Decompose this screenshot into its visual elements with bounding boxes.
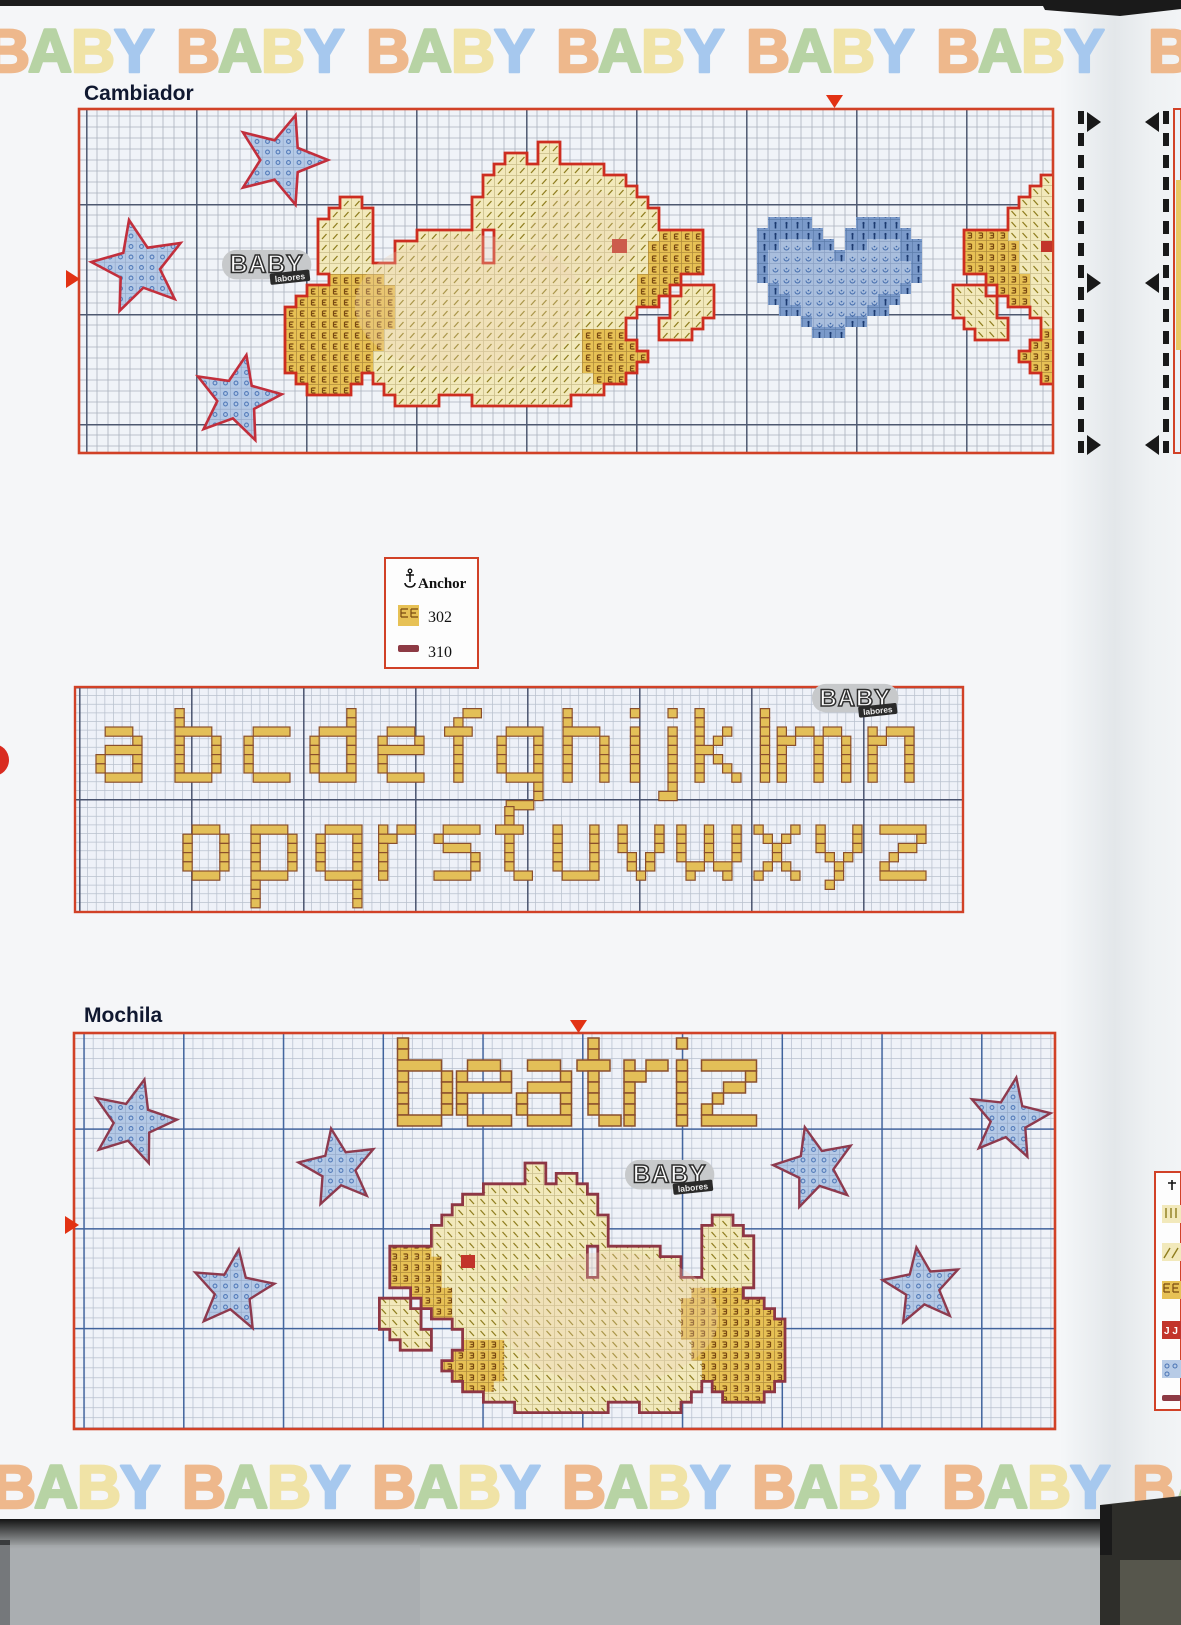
svg-text:B: B <box>372 1453 416 1521</box>
svg-text:B: B <box>1021 17 1065 85</box>
svg-text:Y: Y <box>690 1453 731 1521</box>
svg-text:J J: J J <box>1164 1326 1178 1337</box>
svg-text:Cambiador: Cambiador <box>84 82 194 105</box>
svg-text:B: B <box>267 1453 311 1521</box>
svg-text:Y: Y <box>304 17 345 85</box>
svg-text:B: B <box>1148 17 1181 85</box>
svg-text:302: 302 <box>428 609 452 626</box>
svg-text:B: B <box>641 17 685 85</box>
svg-text:B: B <box>936 17 980 85</box>
svg-text:A: A <box>598 17 642 85</box>
svg-text:Y: Y <box>874 17 915 85</box>
svg-text:A: A <box>788 17 832 85</box>
svg-text:Y: Y <box>1064 17 1105 85</box>
svg-text:Y: Y <box>494 17 535 85</box>
svg-text:310: 310 <box>428 644 452 661</box>
svg-text:A: A <box>984 1453 1028 1521</box>
svg-text:Y: Y <box>120 1453 161 1521</box>
svg-text:B: B <box>837 1453 881 1521</box>
svg-text:B: B <box>457 1453 501 1521</box>
svg-text:Mochila: Mochila <box>84 1004 162 1027</box>
svg-text:A: A <box>218 17 262 85</box>
svg-text:Y: Y <box>880 1453 921 1521</box>
svg-text:B: B <box>942 1453 986 1521</box>
svg-text:B: B <box>261 17 305 85</box>
svg-text:B: B <box>182 1453 226 1521</box>
svg-text:A: A <box>978 17 1022 85</box>
svg-text:B: B <box>366 17 410 85</box>
svg-text:Y: Y <box>500 1453 541 1521</box>
svg-text:B: B <box>0 1453 36 1521</box>
svg-text:B: B <box>647 1453 691 1521</box>
svg-text:A: A <box>604 1453 648 1521</box>
svg-text:A: A <box>414 1453 458 1521</box>
svg-text:B: B <box>556 17 600 85</box>
svg-text:B: B <box>752 1453 796 1521</box>
svg-text:Anchor: Anchor <box>418 576 467 592</box>
svg-text:B: B <box>831 17 875 85</box>
svg-text:B: B <box>176 17 220 85</box>
svg-text:A: A <box>224 1453 268 1521</box>
svg-text:B: B <box>0 17 30 85</box>
svg-text:B: B <box>71 17 115 85</box>
svg-text:B: B <box>1027 1453 1071 1521</box>
svg-text:B: B <box>451 17 495 85</box>
svg-text:B: B <box>746 17 790 85</box>
svg-text:A: A <box>34 1453 78 1521</box>
svg-text:A: A <box>408 17 452 85</box>
svg-text:Y: Y <box>310 1453 351 1521</box>
svg-text:Y: Y <box>114 17 155 85</box>
svg-text:A: A <box>794 1453 838 1521</box>
svg-text:A: A <box>28 17 72 85</box>
svg-text:B: B <box>77 1453 121 1521</box>
svg-text:Y: Y <box>684 17 725 85</box>
svg-text:B: B <box>562 1453 606 1521</box>
